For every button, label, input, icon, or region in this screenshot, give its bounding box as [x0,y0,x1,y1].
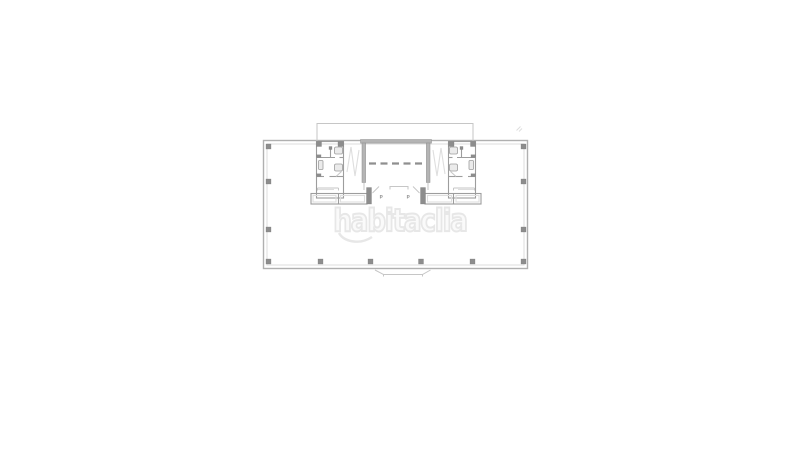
smudge-artifact [517,127,523,132]
column [266,179,271,184]
column [521,144,526,149]
sink-fixture [319,161,324,170]
column [521,227,526,232]
column [266,227,271,232]
door-p-mark-left: P [380,195,384,201]
column [266,259,271,264]
column [318,259,323,264]
watermark-text: habitaclia [333,203,467,239]
stairs-right [433,148,445,176]
restroom-left [317,142,344,199]
column [368,259,373,264]
column [266,144,271,149]
core-column [367,188,372,205]
door-p-mark-right: P [407,195,411,201]
core-canopy-outline [317,124,473,142]
restroom-right [449,142,476,199]
elevator-lobby [361,140,432,191]
column [419,259,424,264]
entrance-steps [375,270,431,277]
column [521,259,526,264]
column [470,259,475,264]
watermark-logo: habitaclia [333,206,467,237]
column [521,179,526,184]
toilet-fixture [335,164,343,171]
lobby-step [390,187,408,190]
door-swing [373,187,380,194]
floorplan-canvas: P P [0,0,800,450]
stairs-left [347,147,359,176]
toilet-fixture [335,147,343,154]
